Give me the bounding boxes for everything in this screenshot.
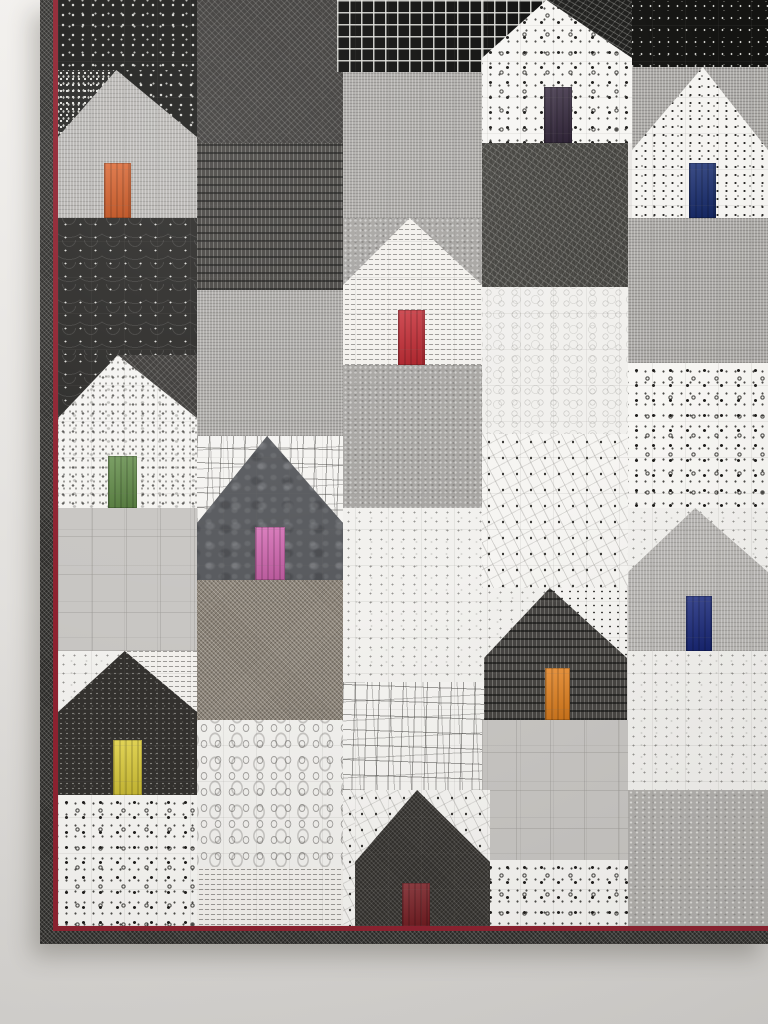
house-gray-orange-door-door: [104, 163, 131, 218]
fabric-patch-whitesqdot: [482, 860, 628, 930]
house-newsprint-red-door-door: [398, 310, 425, 365]
binding-bottom: [40, 931, 768, 944]
house-dotted-purple-door-door: [544, 87, 572, 143]
house-dark-yellow-door-door: [113, 740, 142, 795]
binding-left: [40, 0, 53, 944]
house-dark-maroon-door-door: [402, 883, 430, 930]
house-dotted-purple-door: [482, 0, 632, 143]
fabric-patch-grayplain: [482, 720, 628, 867]
house-sticks-orange-door: [484, 588, 627, 720]
house-white-navy-door-door: [689, 163, 716, 218]
house-white-navy-door: [632, 67, 768, 218]
fabric-patch-blackspeckle: [628, 0, 768, 67]
fabric-patch-windowpane: [337, 0, 482, 72]
fabric-patch-blackdot: [58, 0, 197, 70]
house-dark-yellow-door: [58, 651, 197, 795]
fabric-patch-grayweave: [628, 218, 768, 363]
fabric-patch-whitesqdot: [58, 795, 197, 930]
binding-accent-left: [53, 0, 58, 931]
fabric-patch-whitespeckle: [343, 508, 487, 682]
fabric-patch-grayweave: [197, 290, 343, 436]
fabric-patch-constellation: [482, 434, 628, 588]
fabric-patch-whitesqdot: [628, 363, 768, 508]
fabric-patch-squares: [343, 682, 487, 790]
house-batik-pink-door: [197, 436, 343, 580]
fabric-patch-whitetext: [197, 867, 343, 930]
house-dark-maroon-door: [355, 790, 490, 930]
house-newsprint-red-door: [343, 218, 482, 365]
photo-scene: [0, 0, 768, 1024]
fabric-patch-scribble: [482, 143, 628, 287]
fabric-patch-whitespeckle: [628, 651, 768, 790]
fabric-patch-tweed: [197, 580, 343, 720]
fabric-patch-scallop: [58, 218, 197, 355]
fabric-patch-grayweave: [343, 72, 482, 218]
quilt: [40, 0, 768, 944]
house-gray-orange-door: [58, 70, 197, 218]
house-linen-blue-door: [628, 508, 768, 651]
fabric-patch-darkcross: [197, 0, 343, 143]
house-sticks-orange-door-door: [545, 668, 570, 720]
fabric-patch-graylace: [628, 790, 768, 930]
house-splatter-green-door-door: [108, 456, 137, 508]
house-batik-pink-door-door: [255, 527, 285, 580]
house-linen-blue-door-door: [686, 596, 712, 651]
fabric-patch-swirl: [482, 287, 628, 434]
fabric-patch-oval: [197, 720, 343, 867]
fabric-patch-grayplain: [58, 508, 197, 651]
house-splatter-green-door: [58, 355, 197, 508]
fabric-patch-graymesh: [343, 365, 487, 508]
fabric-patch-darkcols: [197, 143, 343, 290]
